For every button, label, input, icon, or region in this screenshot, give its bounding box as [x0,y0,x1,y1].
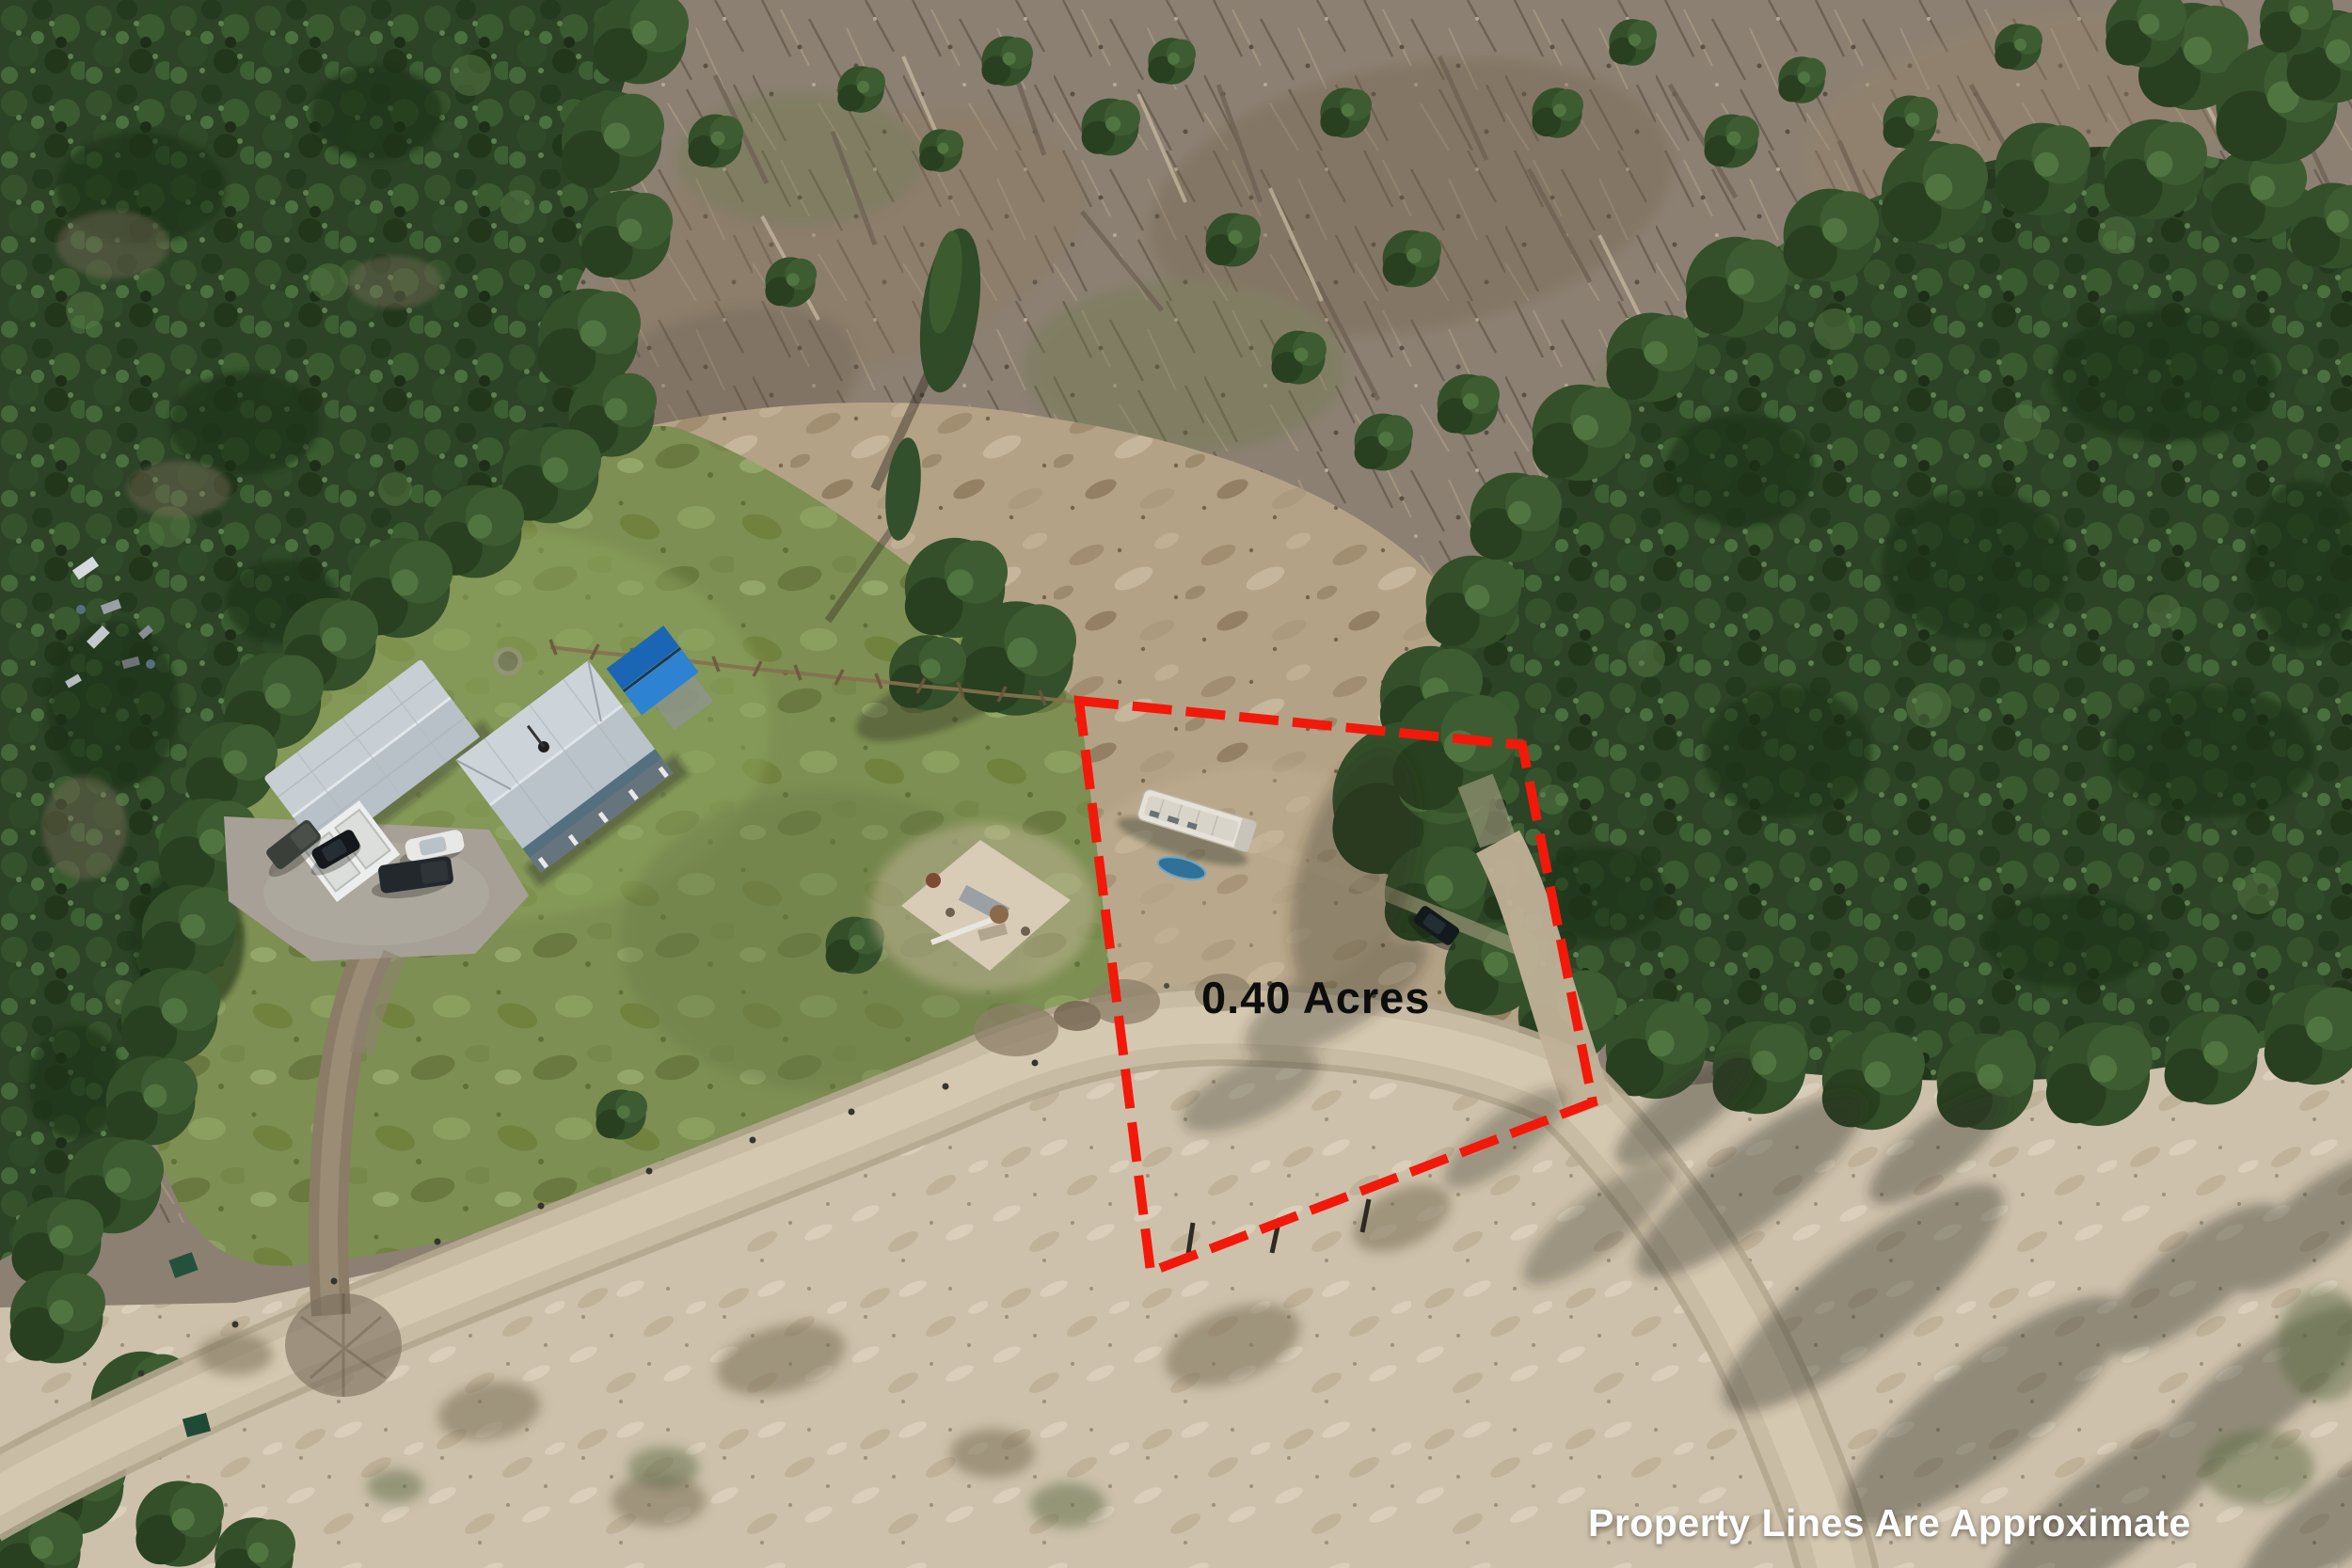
acreage-label: 0.40 Acres [1201,972,1430,1023]
fire-pit-ring [496,649,520,673]
aerial-photo-listing: 0.40 Acres Property Lines Are Approximat… [0,0,2352,1568]
disclaimer-label: Property Lines Are Approximate [1588,1501,2191,1545]
sand-patch-debris [870,823,1096,992]
aerial-photo [0,0,2352,1568]
